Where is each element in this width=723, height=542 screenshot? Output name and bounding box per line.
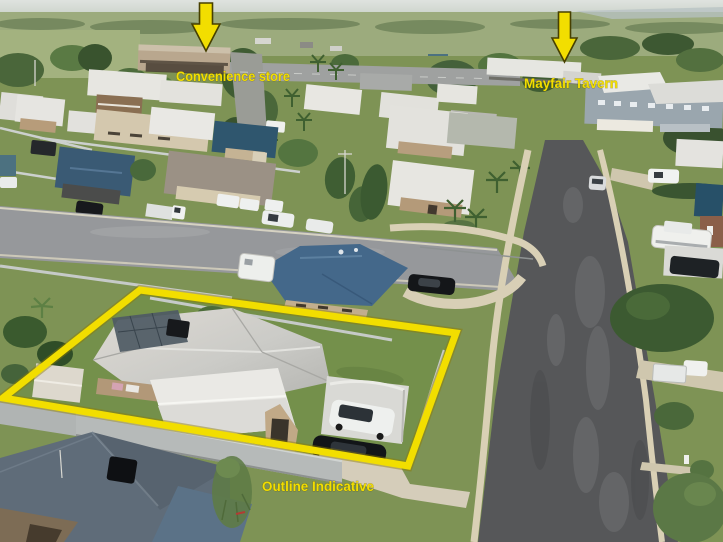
roof-vent-box bbox=[106, 456, 137, 484]
outline-label: Outline Indicative bbox=[262, 478, 374, 494]
tavern-label: Mayfair Tavern bbox=[524, 75, 618, 91]
caravan bbox=[238, 253, 276, 282]
roof-ac-unit bbox=[166, 319, 190, 339]
white-ute bbox=[648, 168, 679, 183]
street-tree bbox=[610, 284, 714, 352]
wispy-tree bbox=[212, 456, 252, 528]
dark-blue-roof bbox=[694, 183, 723, 218]
white-car-left bbox=[0, 177, 17, 188]
store-label: Convenience store bbox=[176, 68, 290, 84]
black-van bbox=[30, 140, 56, 157]
aerial-photo: Convenience store Mayfair Tavern Outline… bbox=[0, 0, 723, 542]
mailbox bbox=[684, 455, 689, 464]
